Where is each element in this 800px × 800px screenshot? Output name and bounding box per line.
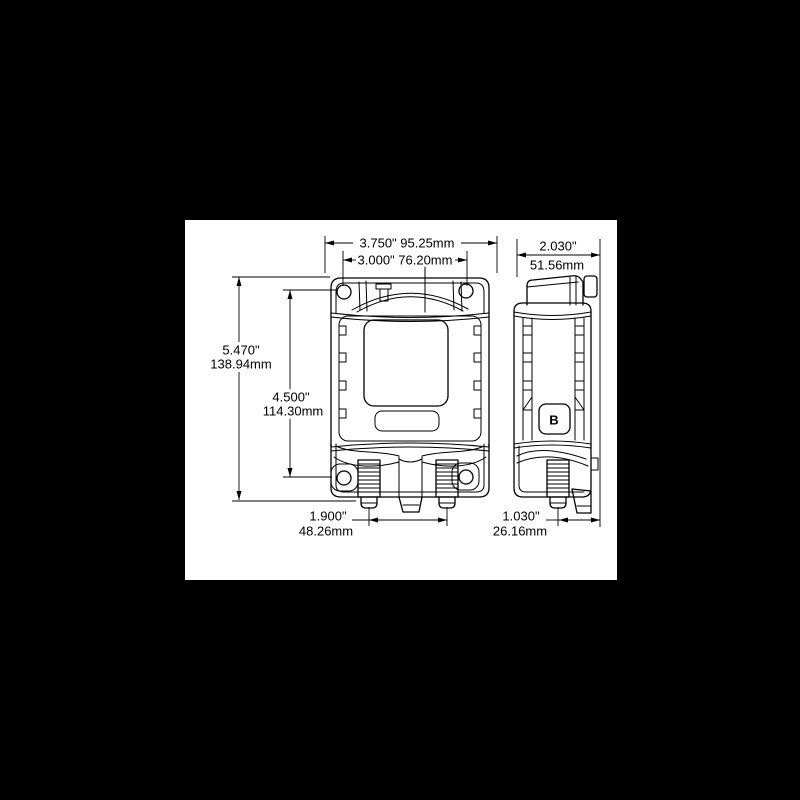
mounting-hole-bottom-right <box>459 470 473 484</box>
dim-stud-spacing-mm: 48.26mm <box>299 524 353 539</box>
front-cap-dome <box>352 293 468 310</box>
terminal-stud-side <box>547 460 569 508</box>
dim-depth-inches: 2.030" <box>539 239 577 254</box>
dim-depth: 2.030" 51.56mm <box>517 239 600 273</box>
dim-overall-height: 5.470" 138.94mm <box>210 277 271 500</box>
mounting-hole-top-left <box>337 285 351 299</box>
dim-overall-width: 3.750" 95.25mm <box>325 236 497 251</box>
side-center-tab <box>572 489 591 513</box>
dim-overall-width-label: 3.750" 95.25mm <box>360 236 455 251</box>
side-cap-tab <box>584 276 597 297</box>
front-side-notches <box>339 326 481 418</box>
dim-hole-spacing-y: 4.500" 114.30mm <box>263 290 323 477</box>
dim-stud-offset-inches: 1.030" <box>502 509 540 524</box>
side-edge-tab <box>591 458 598 470</box>
dim-stud-spacing-inches: 1.900" <box>309 509 347 524</box>
side-marking-letter: B <box>549 413 558 428</box>
terminal-stud-left <box>358 460 380 508</box>
page-background: { "scene": { "background_color": "#00000… <box>0 0 800 800</box>
front-body-inner-outline <box>339 316 481 441</box>
dimension-drawing: B <box>185 220 617 580</box>
dim-depth-mm: 51.56mm <box>530 258 584 273</box>
side-body-outline <box>514 303 591 313</box>
drawing-canvas: B <box>185 220 617 580</box>
dim-stud-offset-mm: 26.16mm <box>493 524 547 539</box>
front-view <box>331 267 489 512</box>
dim-overall-height-inches: 5.470" <box>222 343 260 358</box>
side-cap-outline <box>527 276 583 305</box>
front-label-area <box>364 320 448 406</box>
side-view: B <box>514 276 598 513</box>
dim-hole-spacing-y-inches: 4.500" <box>272 390 310 405</box>
dim-hole-spacing-y-mm: 114.30mm <box>263 404 323 419</box>
terminal-stud-right <box>436 460 458 508</box>
dimension-annotations: 3.750" 95.25mm 3.000" 76.20mm 2.030" 51.… <box>210 236 600 539</box>
front-cap-slot <box>376 284 391 289</box>
dim-stud-spacing: 1.900" 48.26mm <box>299 509 447 539</box>
mounting-hole-bottom-left <box>337 471 351 485</box>
dim-hole-spacing-x: 3.000" 76.20mm <box>343 253 467 268</box>
front-center-tab <box>399 457 422 512</box>
front-small-label-area <box>375 411 439 431</box>
dim-overall-height-mm: 138.94mm <box>210 357 271 372</box>
dim-hole-spacing-x-label: 3.000" 76.20mm <box>358 253 453 268</box>
